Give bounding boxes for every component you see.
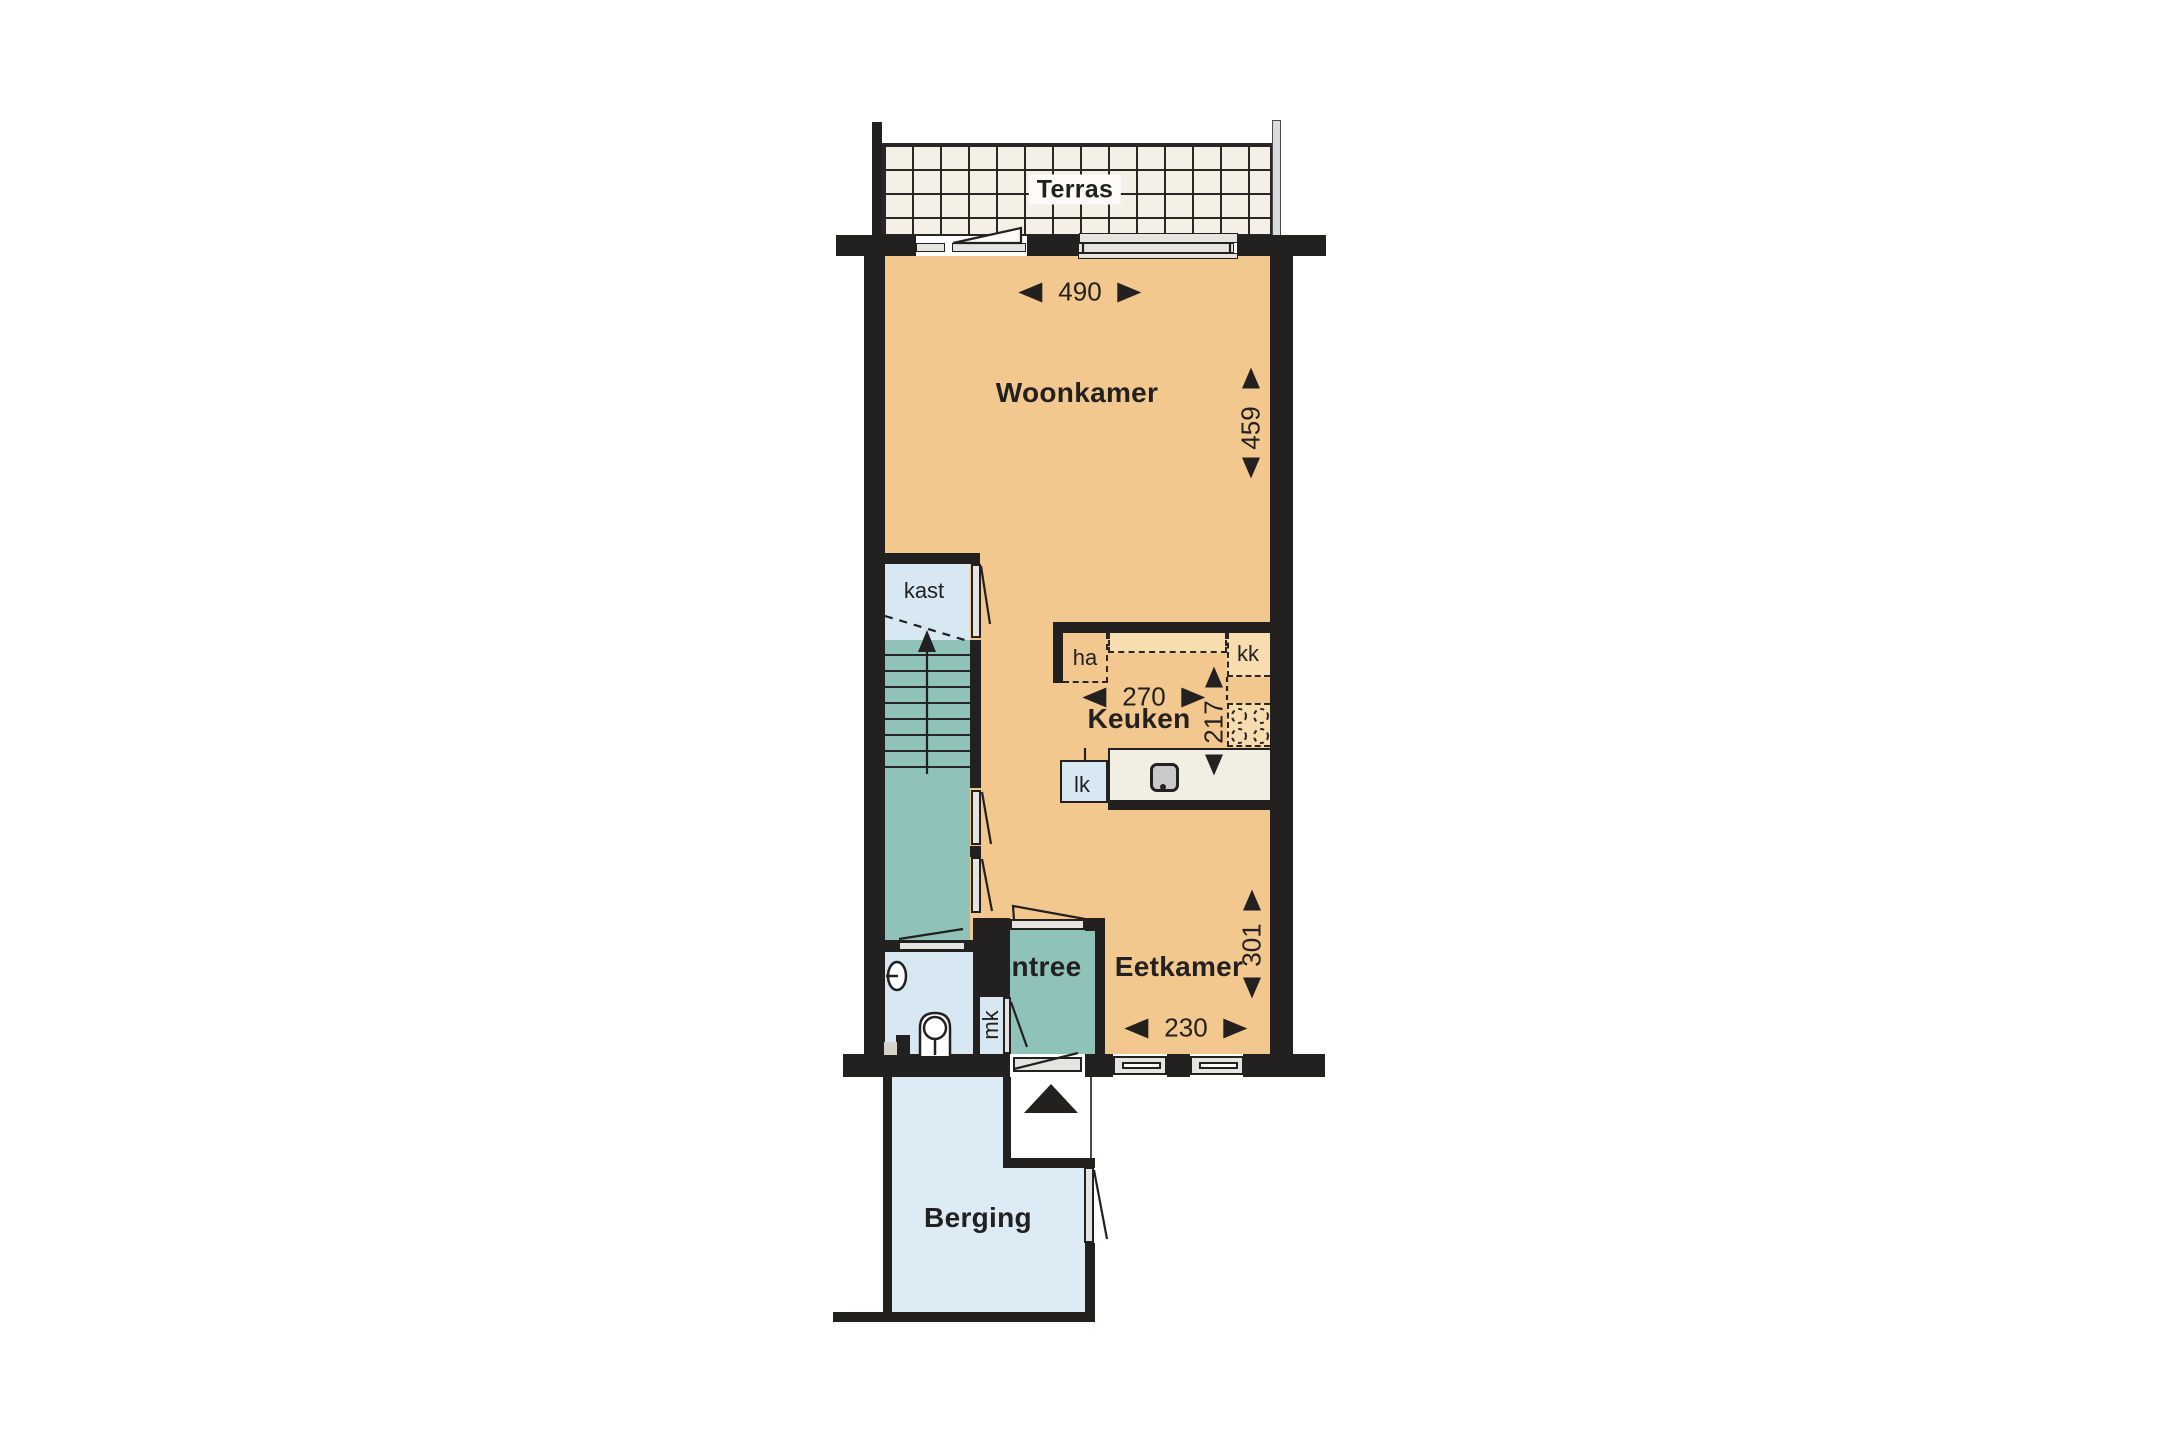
room-label-berging: Berging [924,1202,1032,1234]
terrace-left-wall [872,122,882,235]
bottom-wall-segment [1243,1054,1325,1077]
dim-arrow-down-icon [1205,755,1223,776]
dim-arrow-right-icon [1224,1018,1248,1038]
dim-arrow-left-icon [1018,282,1042,302]
dimension-woonkamer-depth: 459 [1236,406,1267,449]
dim-arrow-left-icon [1124,1018,1148,1038]
hall-door-pier [970,846,981,857]
dim-arrow-up-icon [1243,890,1261,911]
appliance-label-ha: ha [1073,645,1097,671]
kast-door [971,564,981,638]
terrace-door-sill [952,243,1026,252]
berging-door-swing [1094,1170,1107,1239]
room-label-woonkamer: Woonkamer [996,377,1158,409]
left-wall [864,235,885,1077]
porch-left-wall [1003,1077,1011,1168]
closet-label-mk: mk [978,1010,1004,1039]
sliding-door-upper-panel [1079,233,1238,243]
berging-bottom-wall [833,1312,1095,1322]
closet-label-kast: kast [904,578,944,604]
sliding-door-track [1078,253,1238,259]
kitchen-top-wall [1053,622,1270,633]
room-label-terras: Terras [1029,176,1121,205]
stairs-steps [885,640,970,772]
room-label-eetkamer: Eetkamer [1115,951,1243,983]
terrace-door-sill [916,243,945,252]
floor-berging-right [1003,1168,1085,1312]
stairwell-right-wall [970,640,981,788]
bottom-wall-pier [1167,1054,1190,1077]
toilet-door [898,941,966,951]
top-wall-segment [1027,235,1079,256]
dim-value: 270 [1122,682,1165,713]
bottom-wall-segment [1085,1054,1113,1077]
entree-eetkamer-wall [1095,918,1105,1054]
toilet-corner-pilaster [896,1035,910,1054]
dim-arrow-down-icon [1242,458,1260,479]
room-label-entree: Entree [993,951,1082,983]
dim-arrow-down-icon [1243,978,1261,999]
entree-inner-door [1010,919,1085,930]
kitchen-sink [1150,763,1179,792]
porch-bottom-wall [1003,1158,1095,1168]
floor-entree [1010,930,1095,1054]
terras-label-text: Terras [1029,175,1121,205]
counter-bottom-wall [1108,800,1270,810]
appliance-label-lk: lk [1074,772,1090,798]
right-wall [1270,235,1293,1077]
dimension-woonkamer-width: 490 [1018,277,1141,308]
terrace-right-post [1272,120,1281,236]
eetkamer-window [1190,1056,1244,1075]
kast-top-wall [883,553,980,564]
dim-arrow-up-icon [1242,368,1260,389]
dimension-eetkamer-depth: 301 [1237,923,1268,966]
window-pane [1199,1062,1238,1069]
berging-left-wall [883,1075,892,1322]
kitchen-left-stub-wall [1053,622,1063,683]
sliding-door-lower-panel [1078,243,1234,253]
dimension-keuken-width: 270 [1082,682,1205,713]
toilet-corner-block [884,1042,897,1055]
north-arrow-icon [1024,1084,1078,1113]
kitchen-counter [1108,748,1270,800]
dim-value: 490 [1058,277,1101,308]
dim-value: 230 [1164,1013,1207,1044]
dim-arrow-left-icon [1082,687,1106,707]
hall-door-upper [971,790,981,845]
window-pane [1122,1062,1161,1069]
mk-door [1003,997,1011,1054]
dim-arrow-up-icon [1205,667,1223,688]
front-door [1013,1057,1082,1072]
hall-door-lower [971,857,981,913]
dimension-eetkamer-width: 230 [1124,1013,1247,1044]
bottom-wall-segment [843,1054,1010,1077]
kitchen-upper-cabinets [1108,633,1227,653]
eetkamer-window [1113,1056,1167,1075]
berging-door [1084,1167,1094,1243]
porch-edge-line [1090,1077,1092,1158]
dimension-keuken-depth: 217 [1199,700,1230,743]
berging-right-wall [1085,1243,1095,1322]
floorplan: Terras Woonkamer Keuken Entree Eetkamer … [0,0,2160,1440]
appliance-label-kk: kk [1237,641,1259,667]
kitchen-cooktop [1227,703,1270,747]
dim-arrow-right-icon [1118,282,1142,302]
floor-berging-left [892,1077,1003,1312]
